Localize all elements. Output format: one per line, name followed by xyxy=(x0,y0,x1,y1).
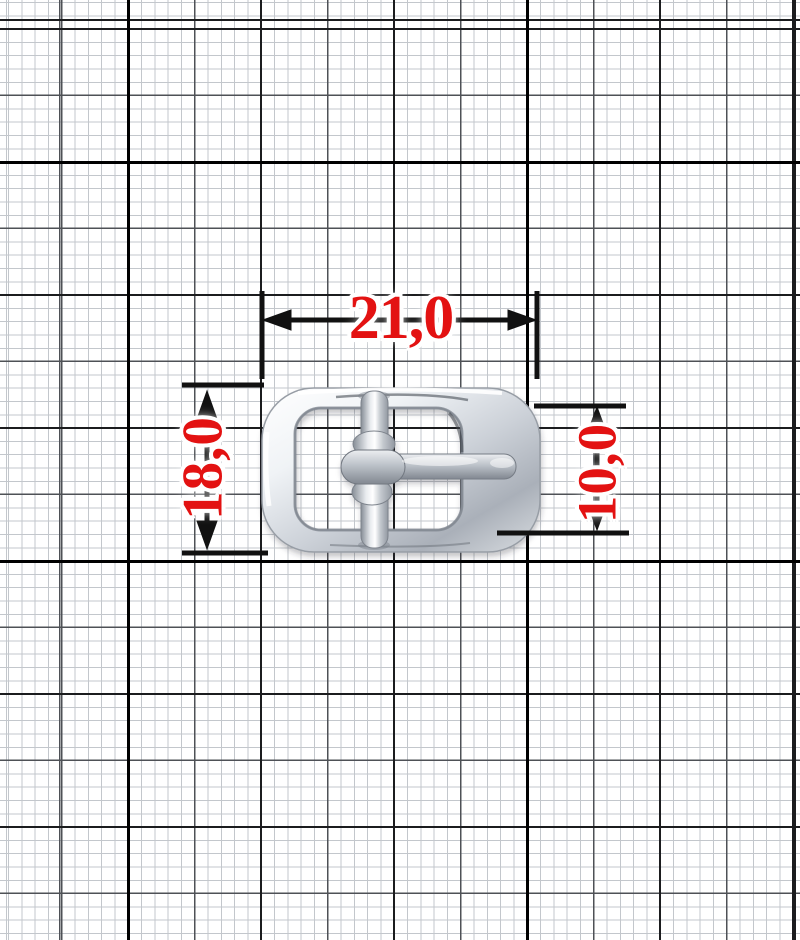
graph-paper-scene: 21,0 18,0 10,0 xyxy=(0,0,800,940)
dimension-label-height-left: 18,0 xyxy=(175,416,232,520)
dimension-label-height-right: 10,0 xyxy=(570,423,625,523)
millimeter-grid xyxy=(0,0,800,940)
grid-heavy-line-horizontal xyxy=(0,560,800,563)
grid-heavy-line-vertical xyxy=(127,0,130,940)
grid-heavy-line-vertical xyxy=(526,0,529,940)
grid-heavy-line-horizontal xyxy=(0,161,800,164)
dimension-label-width: 21,0 xyxy=(349,287,454,349)
